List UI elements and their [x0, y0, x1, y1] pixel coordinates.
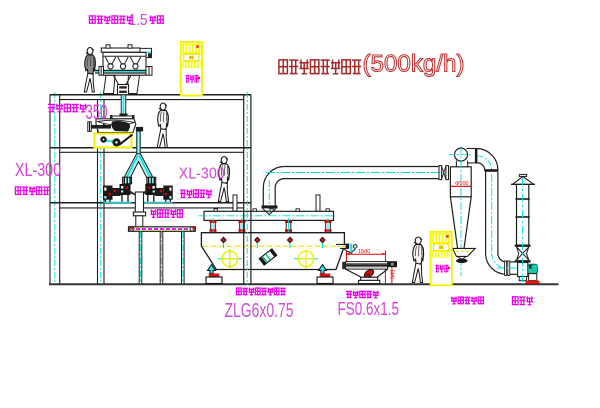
svg-text:1500: 1500	[358, 249, 370, 255]
svg-text:FS0.6x1.5: FS0.6x1.5	[338, 299, 400, 319]
svg-text:545: 545	[391, 270, 397, 279]
svg-text:1.5: 1.5	[129, 12, 148, 29]
svg-text:(500kg/h): (500kg/h)	[363, 51, 465, 78]
svg-text:XL-300: XL-300	[15, 160, 61, 180]
svg-text:350: 350	[86, 101, 108, 124]
svg-text:Φ500: Φ500	[455, 181, 469, 187]
svg-text:XL-300: XL-300	[179, 166, 225, 183]
svg-text:ZLG6x0.75: ZLG6x0.75	[225, 300, 294, 322]
